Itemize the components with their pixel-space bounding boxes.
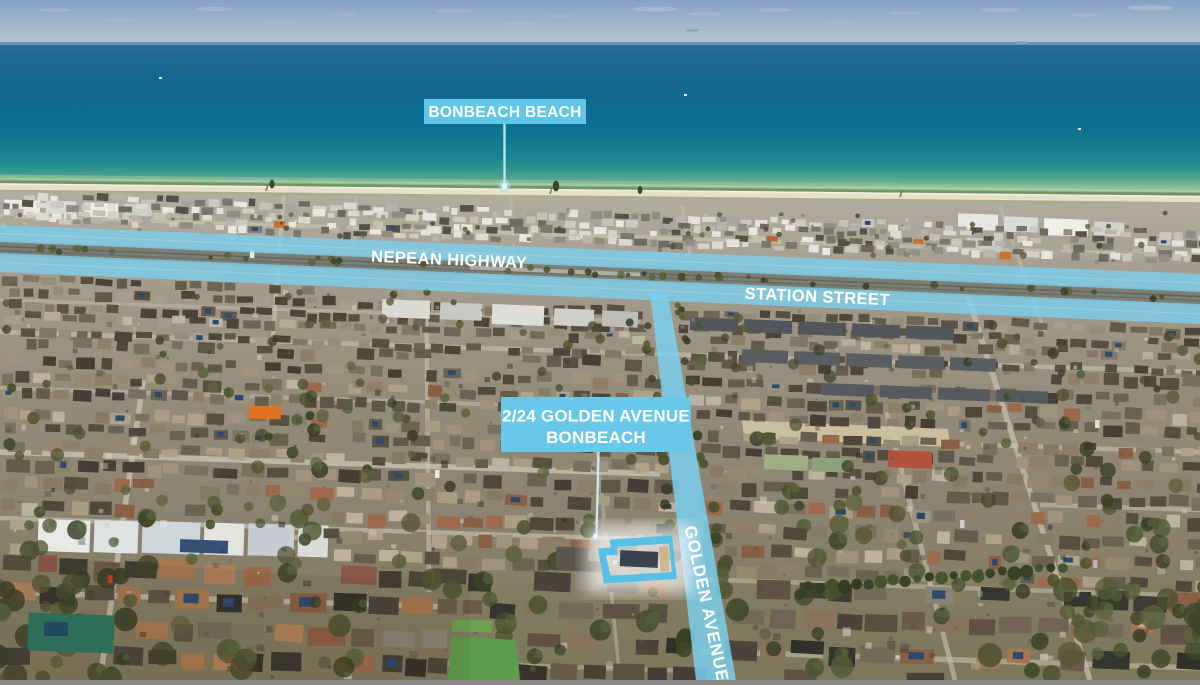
svg-text:BONBEACH BEACH: BONBEACH BEACH: [428, 104, 581, 121]
svg-text:2/24 GOLDEN AVENUE: 2/24 GOLDEN AVENUE: [502, 407, 690, 426]
svg-text:BONBEACH: BONBEACH: [546, 428, 646, 447]
